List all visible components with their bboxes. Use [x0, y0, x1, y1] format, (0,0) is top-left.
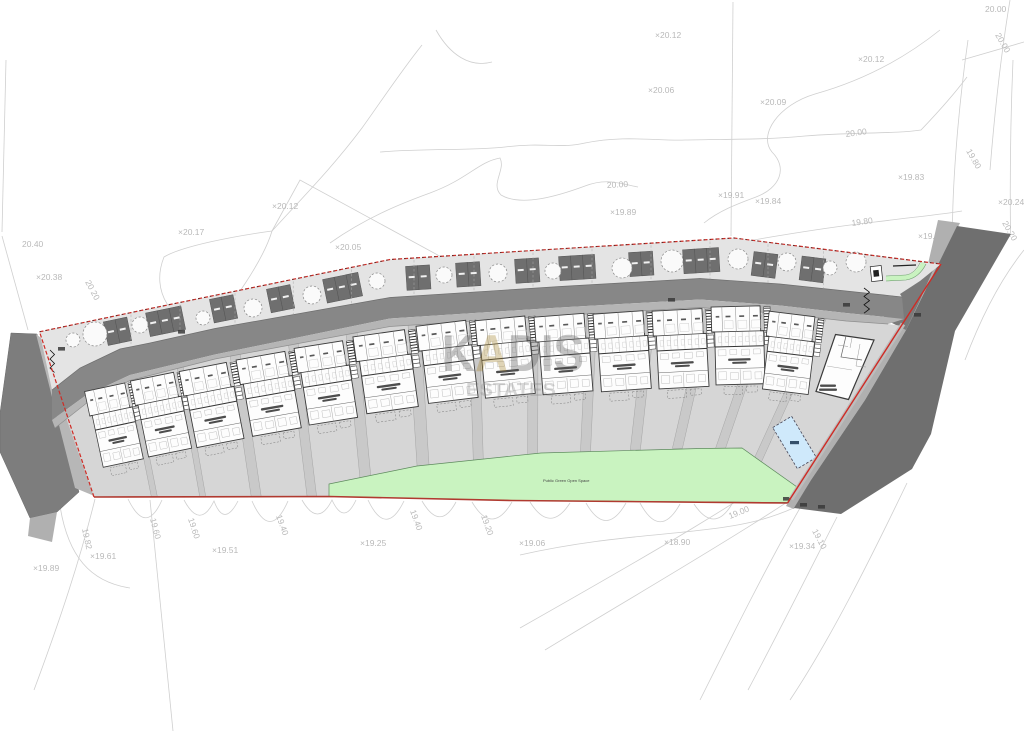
- svg-text:×20.06: ×20.06: [648, 85, 675, 95]
- svg-text:Public Green Open Space: Public Green Open Space: [543, 478, 590, 483]
- svg-text:×19.34: ×19.34: [789, 541, 816, 551]
- svg-text:×19.83: ×19.83: [898, 172, 925, 182]
- svg-text:×18.90: ×18.90: [664, 537, 691, 547]
- svg-text:KADIS: KADIS: [442, 325, 584, 383]
- svg-text:×20.05: ×20.05: [335, 242, 362, 252]
- svg-text:×19.89: ×19.89: [610, 207, 637, 217]
- svg-text:20.40: 20.40: [22, 239, 44, 249]
- svg-text:×20.12: ×20.12: [655, 30, 682, 40]
- svg-text:×20.12: ×20.12: [858, 54, 885, 64]
- svg-text:×19.25: ×19.25: [360, 538, 387, 548]
- svg-text:ESTATES: ESTATES: [466, 380, 556, 400]
- svg-text:20.00: 20.00: [985, 4, 1007, 14]
- svg-text:20.00: 20.00: [607, 179, 629, 190]
- svg-text:×20.38: ×20.38: [36, 272, 63, 282]
- svg-text:×19.51: ×19.51: [212, 545, 239, 555]
- svg-text:×19.06: ×19.06: [519, 538, 546, 548]
- svg-text:×20.24: ×20.24: [998, 197, 1024, 207]
- svg-text:×19.89: ×19.89: [33, 563, 60, 573]
- svg-text:×19.61: ×19.61: [90, 551, 117, 561]
- svg-text:×20.09: ×20.09: [760, 97, 787, 107]
- svg-text:×20.12: ×20.12: [272, 201, 299, 211]
- svg-text:×19.84: ×19.84: [755, 196, 782, 206]
- svg-text:×19.91: ×19.91: [718, 190, 745, 200]
- svg-text:×20.17: ×20.17: [178, 227, 205, 237]
